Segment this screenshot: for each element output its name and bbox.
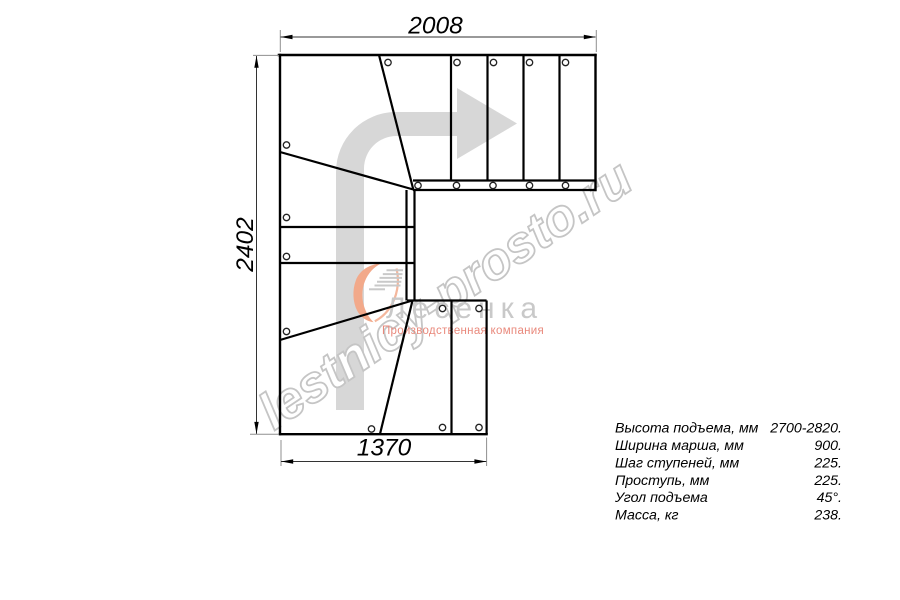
svg-text:Высота подъема, мм: Высота подъема, мм [615, 421, 759, 437]
svg-text:45°.: 45°. [817, 490, 842, 506]
svg-text:225.: 225. [813, 455, 842, 471]
svg-text:Масса, кг: Масса, кг [615, 508, 679, 524]
svg-text:Проступь, мм: Проступь, мм [615, 473, 710, 489]
svg-text:1370: 1370 [357, 435, 412, 462]
svg-text:2008: 2008 [407, 13, 463, 40]
svg-text:2700-2820.: 2700-2820. [769, 421, 842, 437]
svg-text:900.: 900. [814, 438, 842, 454]
svg-text:Угол подъема: Угол подъема [614, 490, 708, 506]
svg-text:Шаг ступеней, мм: Шаг ступеней, мм [615, 455, 739, 471]
svg-text:225.: 225. [813, 473, 842, 489]
svg-text:Ширина марша, мм: Ширина марша, мм [615, 438, 744, 454]
svg-text:238.: 238. [813, 508, 842, 524]
svg-text:2402: 2402 [232, 217, 259, 273]
